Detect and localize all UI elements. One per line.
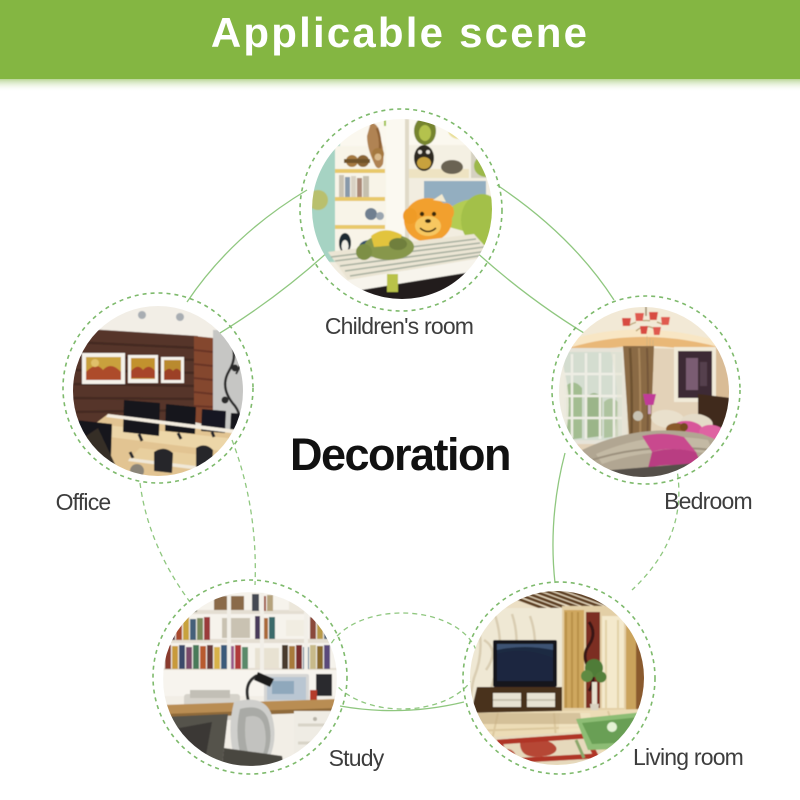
svg-text:Bedroom: Bedroom xyxy=(664,488,752,514)
svg-text:Office: Office xyxy=(56,489,111,515)
svg-text:Applicable scene: Applicable scene xyxy=(211,9,589,56)
svg-text:Decoration: Decoration xyxy=(290,429,510,480)
svg-text:Study: Study xyxy=(329,745,385,771)
svg-text:Children's room: Children's room xyxy=(325,313,473,339)
svg-text:Living room: Living room xyxy=(633,744,743,770)
